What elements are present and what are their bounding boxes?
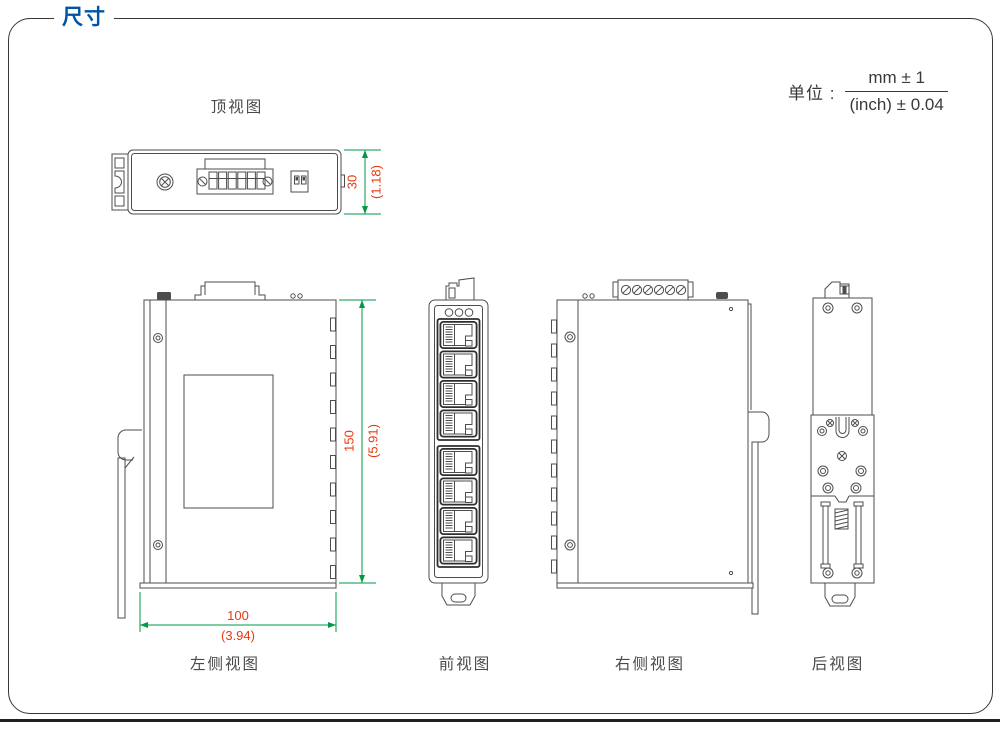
page-title: 尺寸 (54, 5, 114, 31)
unit-note: 单位 : mm ± 1 (inch) ± 0.04 (788, 68, 948, 115)
device-body (144, 300, 336, 583)
unit-label: 单位 : (788, 79, 835, 104)
dimension-width-100: 100 (3.94) (140, 592, 336, 643)
vent-slots (552, 320, 557, 573)
vent-hole (291, 294, 295, 298)
caption-front-view: 前视图 (400, 652, 530, 674)
caption-top-view: 顶视图 (172, 95, 302, 117)
unit-fraction: mm ± 1 (inch) ± 0.04 (845, 68, 947, 115)
dimensions-page: 尺寸 单位 : mm ± 1 (inch) ± 0.04 顶视图 左侧视图 前视… (0, 0, 1000, 733)
front-view-drawing (415, 272, 525, 644)
caption-back-view: 后视图 (773, 652, 903, 674)
terminal-block-top (195, 282, 265, 300)
din-clip-icon (118, 430, 142, 618)
vent-hole (583, 294, 587, 298)
din-clip-top-icon (446, 278, 474, 300)
bottom-divider-bar (0, 719, 1000, 722)
base-plate (557, 583, 753, 588)
dim-150-inch: (5.91) (365, 424, 380, 458)
device-body (557, 300, 748, 583)
left-side-view-drawing: 150 (5.91) 100 (3.94) (100, 272, 390, 644)
unit-inch: (inch) ± 0.04 (845, 92, 947, 115)
mounting-tab (442, 583, 475, 605)
vent-hole (590, 294, 594, 298)
din-clip-top-icon (825, 282, 849, 298)
dimension-height-30: 30 (1.18) (344, 150, 383, 214)
back-view-drawing (785, 272, 895, 644)
reset-button-icon (157, 292, 171, 300)
din-clip-icon (748, 304, 769, 614)
terminal-block-top (613, 280, 693, 300)
reset-button-icon (716, 292, 728, 299)
dimension-height-150: 150 (5.91) (339, 300, 380, 583)
caption-left-view: 左侧视图 (160, 652, 290, 674)
dim-30-mm: 30 (344, 175, 359, 189)
unit-mm: mm ± 1 (845, 68, 947, 92)
device-body-upper (813, 298, 872, 415)
din-clip-icon (112, 154, 128, 210)
dim-150-mm: 150 (341, 430, 356, 452)
caption-right-view: 右侧视图 (585, 652, 715, 674)
right-side-view-drawing (540, 272, 775, 644)
vent-hole (298, 294, 302, 298)
top-view-drawing: 30 (1.18) (105, 138, 395, 233)
din-mount-plate (811, 415, 874, 583)
dim-100-inch: (3.94) (221, 628, 255, 643)
mounting-tab (825, 583, 855, 606)
base-plate (140, 583, 336, 588)
screw-icon (157, 174, 173, 190)
dim-30-inch: (1.18) (368, 165, 383, 199)
dim-100-mm: 100 (227, 608, 249, 623)
